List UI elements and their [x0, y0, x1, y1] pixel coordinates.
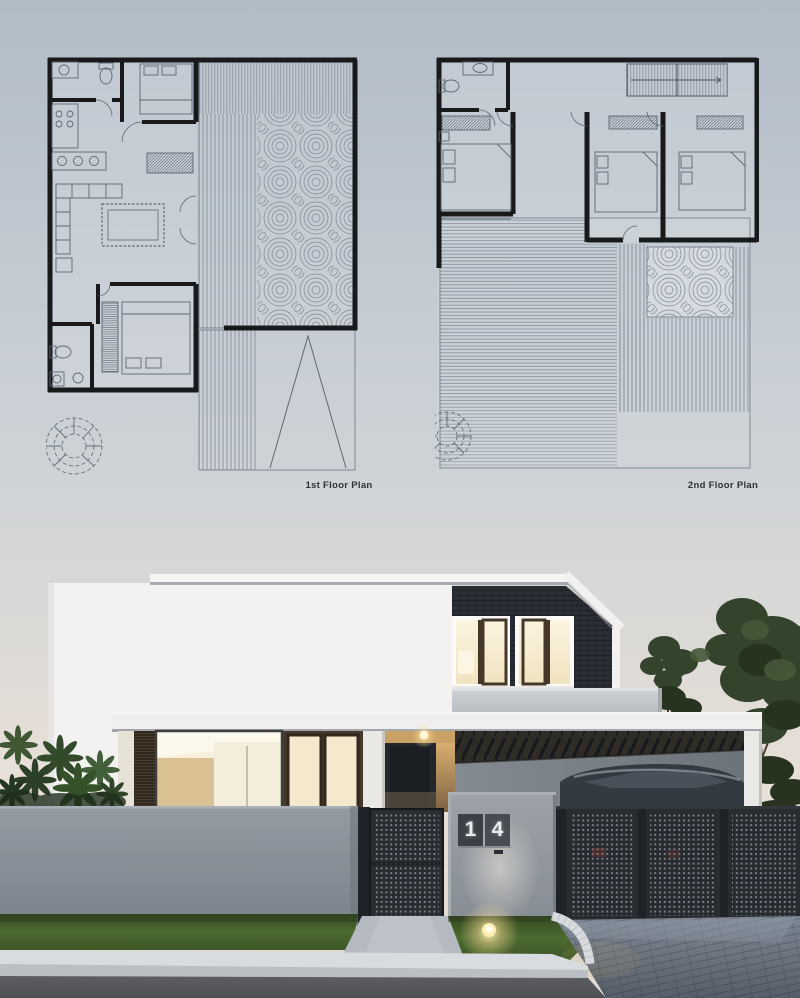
- second-floor-plan-drawing: [435, 56, 759, 476]
- ground-floor-recess: [118, 724, 762, 813]
- facade-pillar: [363, 731, 385, 812]
- architecture-presentation: 1st Floor Plan: [0, 0, 800, 998]
- sidewalk-curb: [0, 950, 588, 978]
- light-fixture: [494, 850, 503, 854]
- house-number-pillar: [448, 792, 556, 924]
- house-number-digit-2: 4: [485, 814, 510, 846]
- house-number-digit-1: 1: [458, 814, 483, 846]
- plan2-stairs: [627, 64, 727, 96]
- plan1-tree-symbol: [46, 418, 102, 474]
- roof-fascia: [150, 574, 568, 585]
- bollard-light-glow: [459, 902, 519, 962]
- wood-glass-doors: [283, 731, 363, 812]
- road: [0, 976, 606, 998]
- driveway-gates: [556, 806, 800, 924]
- second-floor-plan-label: 2nd Floor Plan: [643, 480, 800, 491]
- house-facade: [48, 574, 762, 813]
- house-render: [0, 530, 800, 998]
- boundary-fence: [0, 806, 358, 926]
- louver-panel: [134, 731, 156, 812]
- plan1-deck-hatching: [199, 62, 355, 470]
- pedestrian-gate: [358, 807, 443, 924]
- first-floor-plan-drawing: [46, 56, 362, 476]
- ground-floor-fascia: [112, 712, 762, 732]
- entrance: [385, 724, 455, 812]
- living-window: [156, 731, 282, 812]
- car: [560, 764, 744, 812]
- first-floor-plan-label: 1st Floor Plan: [259, 480, 419, 491]
- house-number-plate: 1 4: [458, 814, 510, 846]
- tail-light-hint: [592, 848, 606, 857]
